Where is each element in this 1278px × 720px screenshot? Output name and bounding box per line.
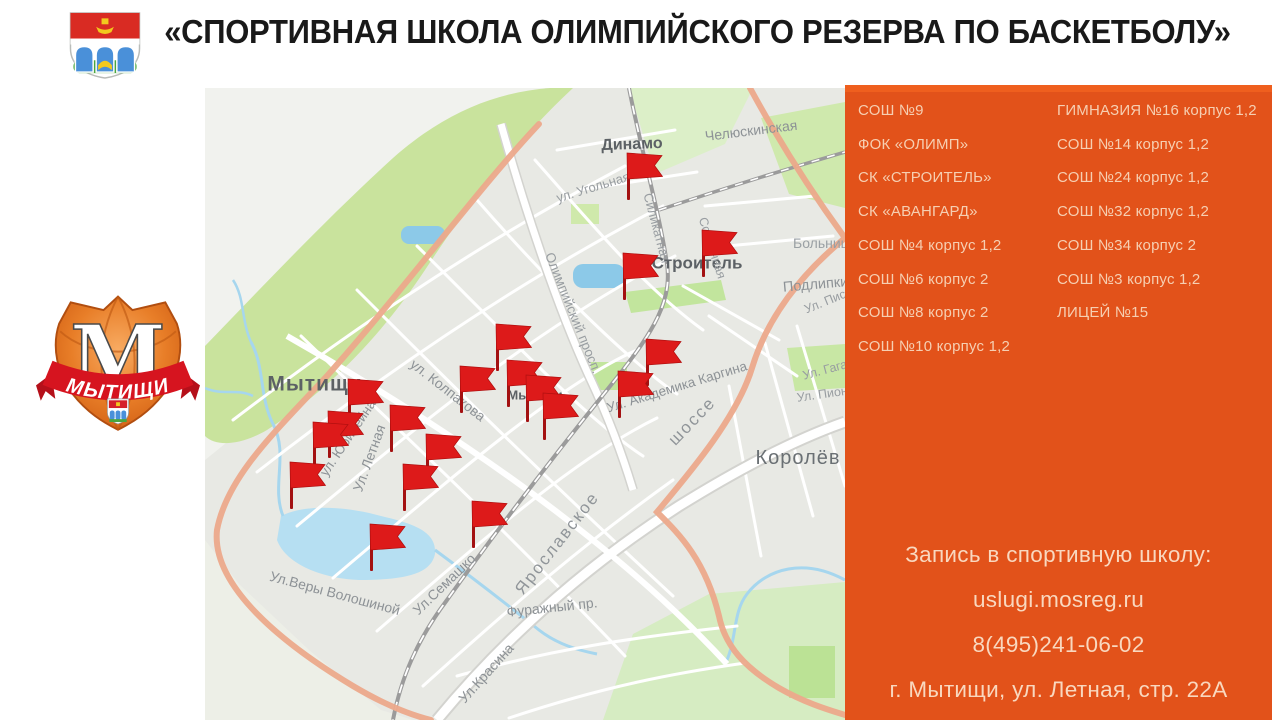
flag-marker-icon [288, 461, 328, 511]
mytishchi-coat-of-arms [66, 9, 144, 80]
contact-line: Запись в спортивную школу: [845, 532, 1272, 577]
page-title: «СПОРТИВНАЯ ШКОЛА ОЛИМПИЙСКОГО РЕЗЕРВА П… [160, 13, 1235, 52]
map-flag-marker [625, 152, 665, 202]
school-list-item: СОШ №6 корпус 2 [858, 263, 1010, 297]
city-map: ДинамоЧелюскинскаяул. УгольнаяСиликатная… [205, 88, 845, 720]
contact-line: г. Мытищи, ул. Летная, стр. 22А [845, 667, 1272, 712]
map-flag-marker [288, 461, 328, 511]
school-list-column-2: ГИМНАЗИЯ №16 корпус 1,2СОШ №14 корпус 1,… [1057, 94, 1257, 330]
info-panel: СОШ №9ФОК «ОЛИМП»СК «СТРОИТЕЛЬ»СК «АВАНГ… [845, 85, 1272, 720]
map-flag-marker [616, 370, 656, 420]
logo-mini-coat-of-arms [107, 399, 128, 424]
school-list-item: СОШ №9 [858, 94, 1010, 128]
flag-marker-icon [621, 252, 661, 302]
school-list-item: ГИМНАЗИЯ №16 корпус 1,2 [1057, 94, 1257, 128]
contact-line: 8(495)241-06-02 [845, 622, 1272, 667]
contact-line: uslugi.mosreg.ru [845, 577, 1272, 622]
flag-marker-icon [470, 500, 510, 550]
school-list-item: СК «СТРОИТЕЛЬ» [858, 161, 1010, 195]
school-list-item: ФОК «ОЛИМП» [858, 128, 1010, 162]
map-flags-layer [205, 88, 845, 720]
map-flag-marker [368, 523, 408, 573]
flag-marker-icon [388, 404, 428, 454]
map-flag-marker [621, 252, 661, 302]
school-list-item: СОШ №8 корпус 2 [858, 296, 1010, 330]
school-list-item: СОШ №3 корпус 1,2 [1057, 263, 1257, 297]
map-flag-marker [541, 392, 581, 442]
school-list-item: СОШ №32 корпус 1,2 [1057, 195, 1257, 229]
school-list-item: СОШ №14 корпус 1,2 [1057, 128, 1257, 162]
flag-marker-icon [541, 392, 581, 442]
school-list-item: СОШ №10 корпус 1,2 [858, 330, 1010, 364]
map-flag-marker [388, 404, 428, 454]
school-list-item: СОШ №24 корпус 1,2 [1057, 161, 1257, 195]
map-flag-marker [470, 500, 510, 550]
flag-marker-icon [368, 523, 408, 573]
basketball-shield-icon: М МЫТИЩИ [36, 290, 200, 446]
school-list-item: СК «АВАНГАРД» [858, 195, 1010, 229]
school-list-column-1: СОШ №9ФОК «ОЛИМП»СК «СТРОИТЕЛЬ»СК «АВАНГ… [858, 94, 1010, 364]
school-list-item: ЛИЦЕЙ №15 [1057, 296, 1257, 330]
flag-marker-icon [700, 229, 740, 279]
map-flag-marker [458, 365, 498, 415]
coat-of-arms-icon [66, 9, 144, 80]
slide: { "slide": { "title": "«СПОРТИВНАЯ ШКОЛА… [0, 0, 1278, 720]
map-flag-marker [700, 229, 740, 279]
flag-marker-icon [616, 370, 656, 420]
flag-marker-icon [458, 365, 498, 415]
enrollment-contact-block: Запись в спортивную школу:uslugi.mosreg.… [845, 532, 1272, 712]
mytishchi-basketball-logo: М МЫТИЩИ [36, 290, 200, 446]
flag-marker-icon [401, 463, 441, 513]
flag-marker-icon [625, 152, 665, 202]
school-list-item: СОШ №34 корпус 2 [1057, 229, 1257, 263]
school-list-item: СОШ №4 корпус 1,2 [858, 229, 1010, 263]
map-flag-marker [401, 463, 441, 513]
